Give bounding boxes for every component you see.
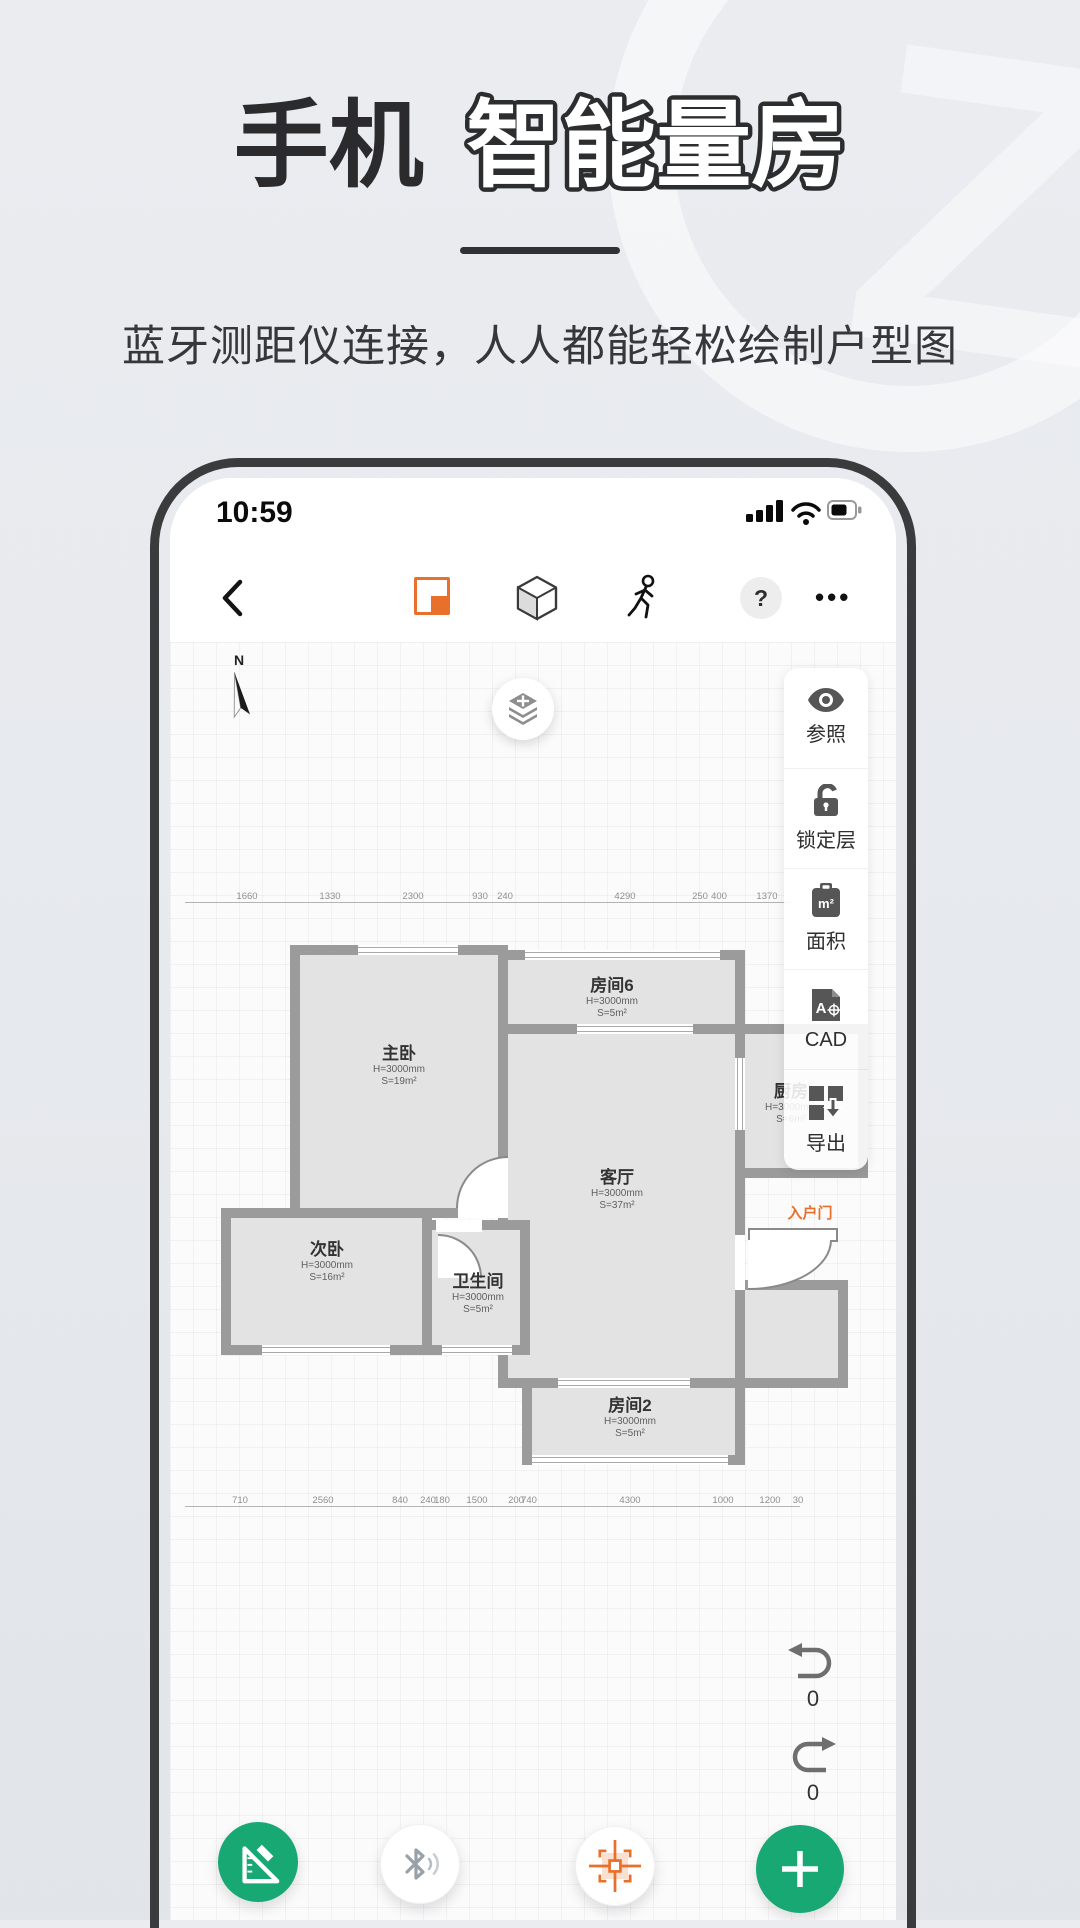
tool-panel: 参照 锁定层 m² [784,668,868,1170]
window [358,945,458,955]
title-solid: 手机 [234,93,424,199]
app-toolbar: ? ••• [170,552,896,642]
floorplan-2d-fill [431,596,447,612]
dimension-line-bottom [185,1506,800,1507]
page-title: 手机 智能量房 [160,60,920,220]
window [558,1378,690,1388]
undo-button[interactable] [786,1642,838,1684]
dim-label: 180 [434,1495,450,1506]
window [532,1455,728,1465]
clock: 10:59 [216,496,293,530]
tool-export[interactable]: 导出 [784,1069,868,1170]
window [442,1345,512,1355]
dim-label: 240 [497,891,513,902]
dim-label: 4300 [619,1495,640,1506]
cube-3d-icon[interactable] [515,575,559,621]
room-living[interactable] [498,1024,745,1388]
wifi-icon [793,504,819,525]
more-menu-button[interactable]: ••• [815,582,851,613]
window [735,1058,745,1130]
crosshair-icon [589,1840,641,1892]
eye-icon [808,688,844,712]
layers-button[interactable] [492,678,554,740]
dimension-line-top [185,902,790,903]
room-2[interactable] [522,1378,745,1465]
ruler-icon [235,1839,281,1885]
dim-label: 740 [521,1495,537,1506]
floorplan-canvas[interactable]: N 1660 1330 2300 930 240 [170,642,896,1920]
dim-label: 1370 [756,891,777,902]
walkthrough-icon[interactable] [625,574,665,622]
dim-label: 840 [392,1495,408,1506]
help-button[interactable]: ? [740,577,782,619]
page-subtitle: 蓝牙测距仪连接，人人都能轻松绘制户型图 [0,312,1080,374]
title-underline [460,247,620,254]
dim-label: 1200 [759,1495,780,1506]
dim-label: 930 [472,891,488,902]
bluetooth-button[interactable] [380,1824,460,1904]
undo-count: 0 [800,1686,826,1712]
window [577,1024,693,1034]
redo-button[interactable] [786,1736,838,1778]
tool-lock-layer[interactable]: 锁定层 [784,768,868,869]
svg-text:m²: m² [818,896,835,911]
dim-label: 1000 [712,1495,733,1506]
dim-label: 1330 [319,891,340,902]
dim-label: 710 [232,1495,248,1506]
compass-label: N [234,652,244,668]
add-button[interactable] [756,1825,844,1913]
title-outline: 智能量房 [466,93,846,199]
window [525,950,720,960]
tool-area[interactable]: m² 面积 [784,868,868,969]
dim-label: 1500 [466,1495,487,1506]
floorplan-2d-icon[interactable] [414,577,450,615]
status-bar: 10:59 [170,478,896,552]
signal-icon [746,500,783,522]
window [262,1345,390,1355]
center-target-button[interactable] [575,1826,655,1906]
svg-text:手机 智能量房: 手机 智能量房 [234,93,846,199]
room-second-bedroom[interactable] [221,1208,432,1355]
area-icon: m² [809,883,843,919]
dim-label: 2300 [402,891,423,902]
battery-icon [828,501,862,519]
tool-cad[interactable]: A CAD [784,969,868,1070]
back-icon[interactable] [220,579,246,617]
compass-needle-icon [221,668,256,728]
dim-label: 1660 [236,891,257,902]
entrance-door-label: 入户门 [787,1202,832,1223]
room-living-extension[interactable] [735,1280,848,1388]
dim-label: 250 [692,891,708,902]
door-opening-master [458,1208,508,1218]
cad-file-icon: A [810,987,842,1023]
plus-icon [778,1847,822,1891]
svg-text:A: A [816,1000,827,1017]
dim-label: 4290 [614,891,635,902]
phone-frame: 10:59 [150,458,916,1928]
phone-screen: 10:59 [170,478,896,1920]
dim-label: 30 [793,1495,804,1506]
door-opening-bathroom [436,1220,482,1232]
export-icon [808,1085,844,1121]
measure-tool-button[interactable] [218,1822,298,1902]
status-icons [746,496,862,526]
dim-label: 400 [711,891,727,902]
bluetooth-icon [397,1842,443,1886]
dim-label: 2560 [312,1495,333,1506]
redo-count: 0 [800,1780,826,1806]
tool-reference[interactable]: 参照 [784,668,868,768]
lock-open-icon [810,784,842,818]
room-6[interactable] [498,950,745,1034]
door-opening-entrance [735,1235,745,1290]
layers-icon [506,692,540,726]
